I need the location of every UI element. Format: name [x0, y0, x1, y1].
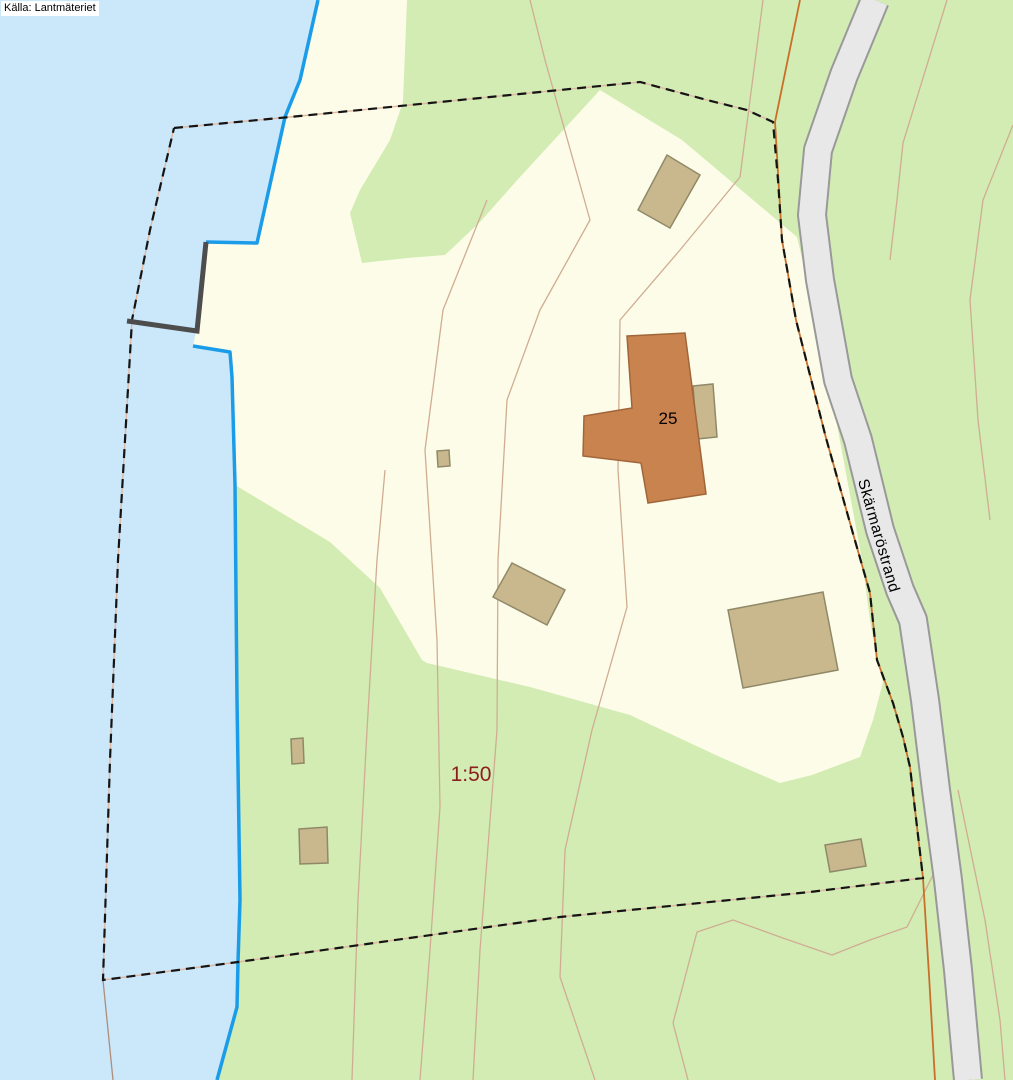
parcel-label: 1:50	[451, 763, 492, 786]
map-canvas[interactable]: 25 1:50 Skärmaröstrand Källa: Lantmäteri…	[0, 0, 1013, 1080]
source-attribution: Källa: Lantmäteriet	[1, 1, 99, 16]
shed-tiny	[437, 450, 450, 467]
terrain-layer	[0, 0, 1013, 1080]
map-svg: 25 1:50 Skärmaröstrand	[0, 0, 1013, 1080]
outbuilding-southwest-large	[299, 827, 328, 864]
outbuilding-east-large	[728, 592, 838, 688]
building-number-label: 25	[659, 409, 678, 428]
outbuilding-southeast	[825, 839, 866, 872]
outbuilding-southwest-small	[291, 738, 304, 764]
